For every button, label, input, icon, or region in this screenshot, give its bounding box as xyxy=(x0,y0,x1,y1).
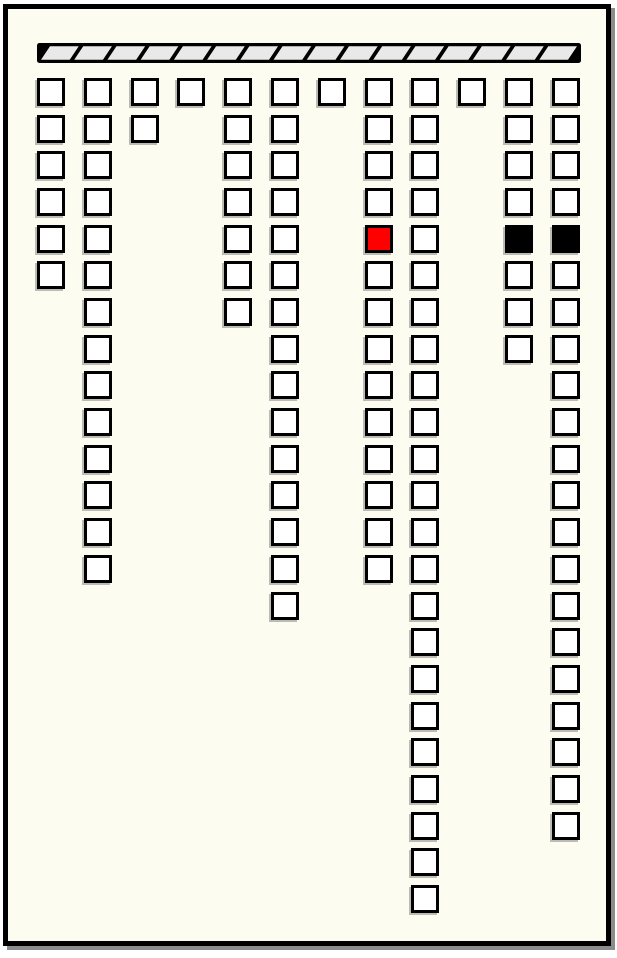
cell-empty[interactable] xyxy=(411,518,439,546)
cell-empty[interactable] xyxy=(411,151,439,179)
cell-empty[interactable] xyxy=(411,628,439,656)
cell-empty[interactable] xyxy=(505,261,533,289)
cell-empty[interactable] xyxy=(458,78,486,106)
cell-empty[interactable] xyxy=(271,298,299,326)
cell-empty[interactable] xyxy=(552,665,580,693)
cell-empty[interactable] xyxy=(84,445,112,473)
cell-filled-black[interactable] xyxy=(552,225,580,253)
cell-empty[interactable] xyxy=(365,115,393,143)
cell-empty[interactable] xyxy=(318,78,346,106)
cell-empty[interactable] xyxy=(365,261,393,289)
cell-empty[interactable] xyxy=(271,335,299,363)
cell-empty[interactable] xyxy=(271,78,299,106)
cell-empty[interactable] xyxy=(271,225,299,253)
cell-empty[interactable] xyxy=(271,151,299,179)
cell-empty[interactable] xyxy=(552,518,580,546)
cell-empty[interactable] xyxy=(505,78,533,106)
cell-empty[interactable] xyxy=(365,408,393,436)
cell-empty[interactable] xyxy=(552,738,580,766)
cell-empty[interactable] xyxy=(271,115,299,143)
cell-empty[interactable] xyxy=(84,371,112,399)
cell-empty[interactable] xyxy=(365,298,393,326)
cell-empty[interactable] xyxy=(505,298,533,326)
cell-empty[interactable] xyxy=(84,555,112,583)
cell-empty[interactable] xyxy=(411,188,439,216)
cell-empty[interactable] xyxy=(84,518,112,546)
cell-empty[interactable] xyxy=(552,628,580,656)
cell-empty[interactable] xyxy=(84,151,112,179)
cell-empty[interactable] xyxy=(271,188,299,216)
cell-empty[interactable] xyxy=(552,812,580,840)
cell-empty[interactable] xyxy=(411,812,439,840)
cell-empty[interactable] xyxy=(177,78,205,106)
cell-empty[interactable] xyxy=(271,408,299,436)
cell-empty[interactable] xyxy=(411,592,439,620)
cell-empty[interactable] xyxy=(224,151,252,179)
cell-empty[interactable] xyxy=(552,188,580,216)
cell-empty[interactable] xyxy=(505,188,533,216)
cell-empty[interactable] xyxy=(224,261,252,289)
cell-empty[interactable] xyxy=(365,188,393,216)
cell-empty[interactable] xyxy=(224,188,252,216)
cell-empty[interactable] xyxy=(224,78,252,106)
cell-empty[interactable] xyxy=(365,445,393,473)
cell-empty[interactable] xyxy=(552,481,580,509)
cell-empty[interactable] xyxy=(224,298,252,326)
cell-empty[interactable] xyxy=(365,335,393,363)
cell-empty[interactable] xyxy=(411,738,439,766)
cell-empty[interactable] xyxy=(411,848,439,876)
cell-filled-black[interactable] xyxy=(505,225,533,253)
cell-empty[interactable] xyxy=(365,371,393,399)
cell-empty[interactable] xyxy=(552,371,580,399)
cell-empty[interactable] xyxy=(84,115,112,143)
page xyxy=(0,0,617,958)
cell-empty[interactable] xyxy=(84,335,112,363)
cell-empty[interactable] xyxy=(84,188,112,216)
hatched-header-bar xyxy=(34,40,584,66)
cell-empty[interactable] xyxy=(271,555,299,583)
cell-empty[interactable] xyxy=(365,78,393,106)
cell-empty[interactable] xyxy=(411,78,439,106)
cell-empty[interactable] xyxy=(271,445,299,473)
cell-empty[interactable] xyxy=(271,261,299,289)
cell-empty[interactable] xyxy=(552,555,580,583)
cell-empty[interactable] xyxy=(365,518,393,546)
cell-empty[interactable] xyxy=(84,78,112,106)
cell-empty[interactable] xyxy=(411,335,439,363)
cell-empty[interactable] xyxy=(411,408,439,436)
cell-empty[interactable] xyxy=(37,115,65,143)
cell-empty[interactable] xyxy=(552,261,580,289)
cell-empty[interactable] xyxy=(411,665,439,693)
cell-empty[interactable] xyxy=(411,298,439,326)
cell-empty[interactable] xyxy=(552,115,580,143)
cell-empty[interactable] xyxy=(505,335,533,363)
cell-empty[interactable] xyxy=(552,78,580,106)
cell-empty[interactable] xyxy=(411,225,439,253)
cell-empty[interactable] xyxy=(552,151,580,179)
cell-empty[interactable] xyxy=(552,445,580,473)
cell-empty[interactable] xyxy=(365,151,393,179)
cell-empty[interactable] xyxy=(411,261,439,289)
cell-empty[interactable] xyxy=(411,885,439,913)
cell-empty[interactable] xyxy=(84,261,112,289)
cell-empty[interactable] xyxy=(131,115,159,143)
cell-empty[interactable] xyxy=(224,115,252,143)
cell-empty[interactable] xyxy=(552,702,580,730)
cell-empty[interactable] xyxy=(505,115,533,143)
cell-empty[interactable] xyxy=(411,702,439,730)
cell-empty[interactable] xyxy=(552,298,580,326)
cell-empty[interactable] xyxy=(411,115,439,143)
cell-empty[interactable] xyxy=(37,78,65,106)
cell-empty[interactable] xyxy=(411,775,439,803)
cell-empty[interactable] xyxy=(37,225,65,253)
cell-empty[interactable] xyxy=(271,518,299,546)
cell-empty[interactable] xyxy=(37,188,65,216)
cell-empty[interactable] xyxy=(84,225,112,253)
cell-empty[interactable] xyxy=(84,408,112,436)
cell-empty[interactable] xyxy=(224,225,252,253)
cell-empty[interactable] xyxy=(411,555,439,583)
cell-empty[interactable] xyxy=(505,151,533,179)
cell-empty[interactable] xyxy=(271,481,299,509)
cell-empty[interactable] xyxy=(365,481,393,509)
cell-empty[interactable] xyxy=(411,371,439,399)
cell-empty[interactable] xyxy=(271,371,299,399)
board-frame xyxy=(3,4,611,946)
cell-empty[interactable] xyxy=(552,408,580,436)
cell-empty[interactable] xyxy=(131,78,159,106)
cell-empty[interactable] xyxy=(552,592,580,620)
cell-empty[interactable] xyxy=(411,481,439,509)
cell-red[interactable] xyxy=(365,225,393,253)
cell-empty[interactable] xyxy=(84,481,112,509)
cell-empty[interactable] xyxy=(37,151,65,179)
cell-empty[interactable] xyxy=(84,298,112,326)
cell-empty[interactable] xyxy=(552,775,580,803)
cell-empty[interactable] xyxy=(552,335,580,363)
cell-empty[interactable] xyxy=(37,261,65,289)
cell-empty[interactable] xyxy=(365,555,393,583)
cell-empty[interactable] xyxy=(411,445,439,473)
cell-empty[interactable] xyxy=(271,592,299,620)
